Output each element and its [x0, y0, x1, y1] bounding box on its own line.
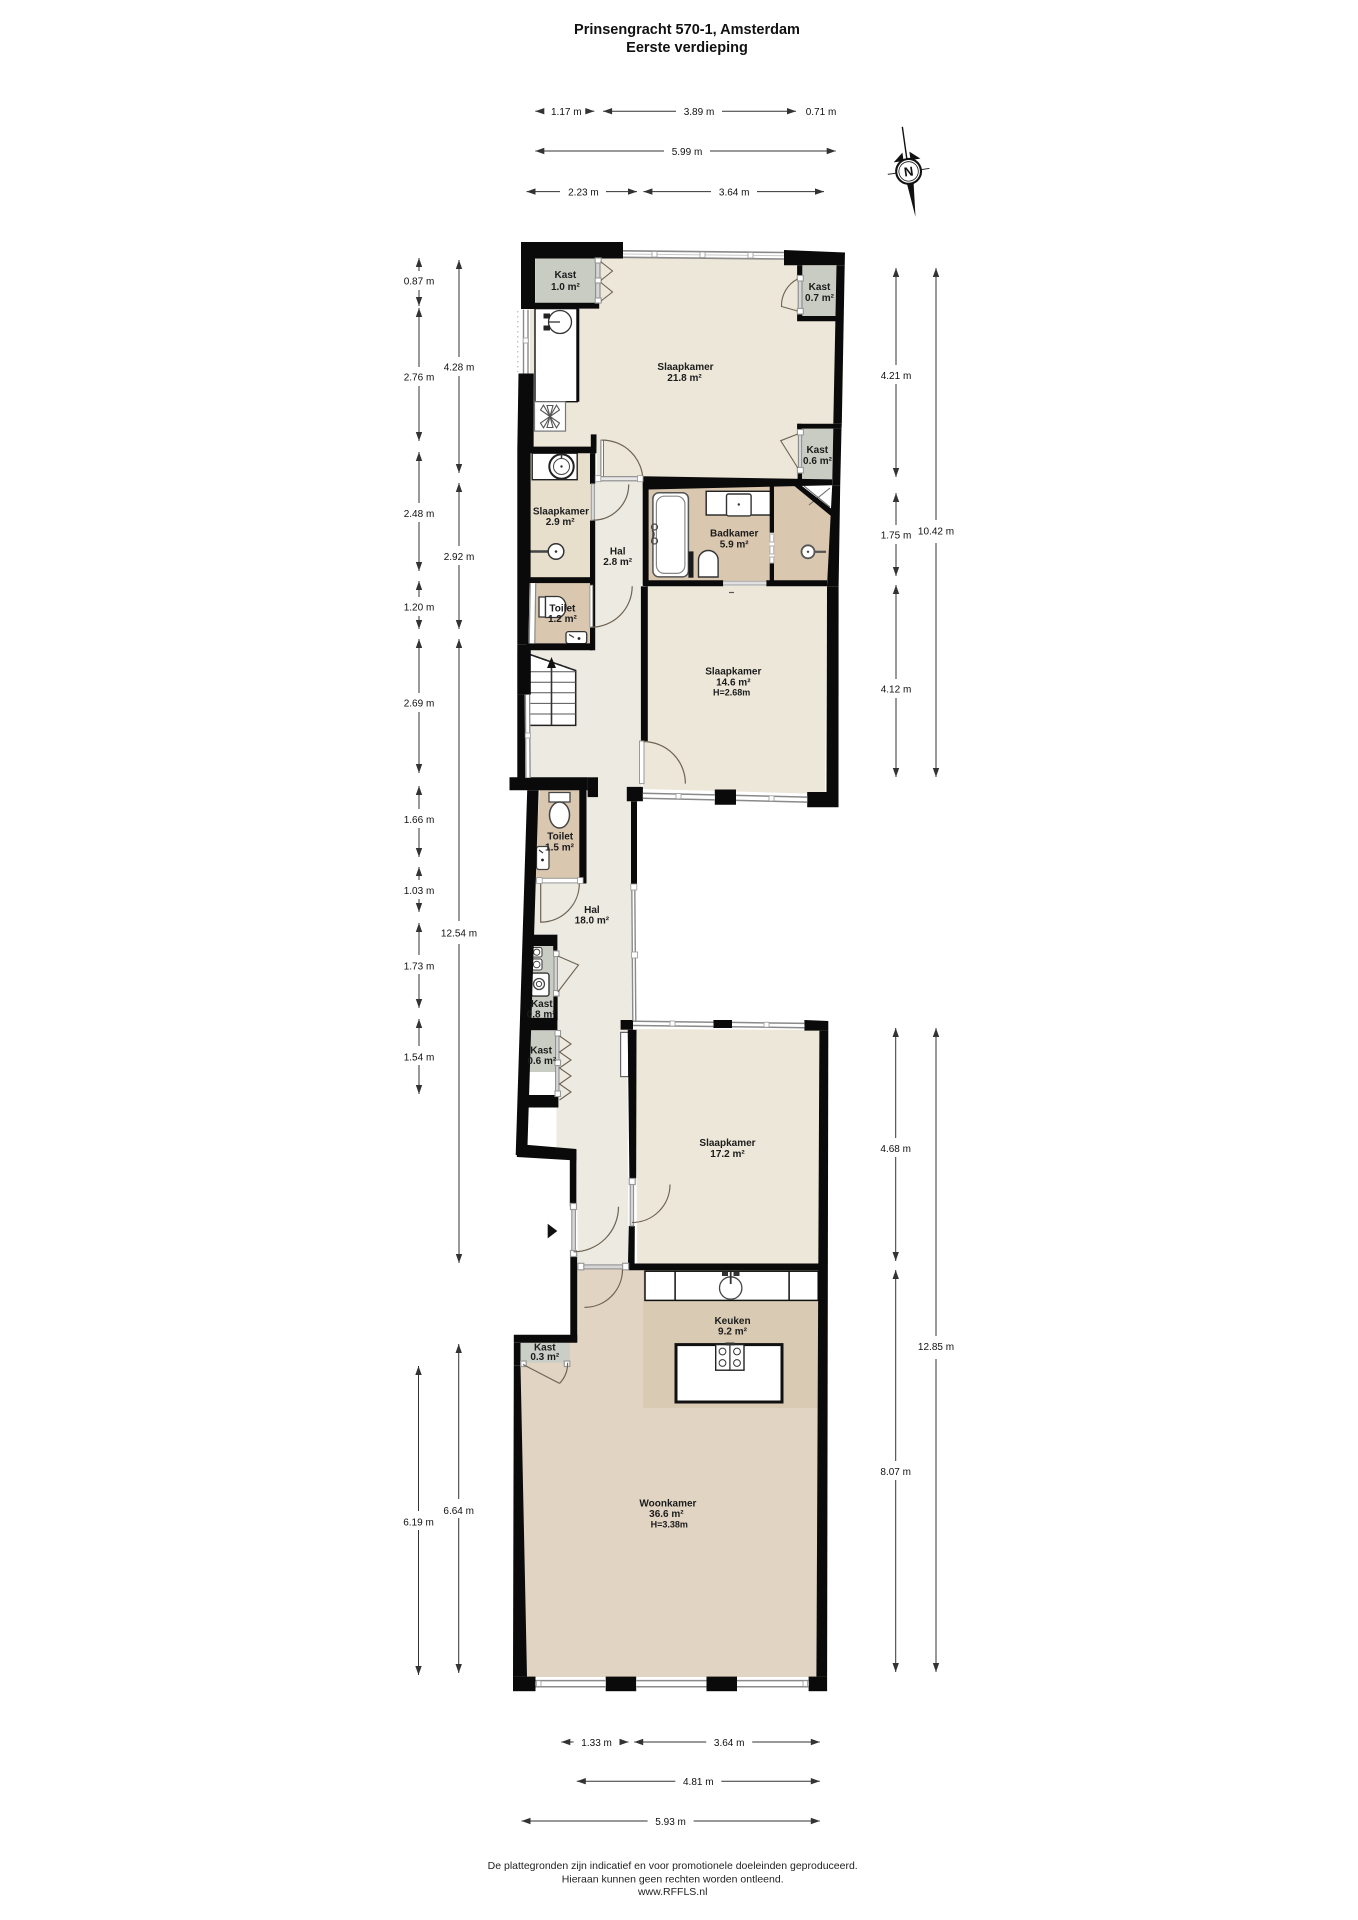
- svg-text:De plattegronden zijn indicati: De plattegronden zijn indicatief en voor…: [488, 1860, 858, 1872]
- svg-text:2.23 m: 2.23 m: [568, 188, 599, 199]
- svg-text:1.66 m: 1.66 m: [404, 815, 435, 826]
- svg-text:1.0 m²: 1.0 m²: [551, 282, 581, 293]
- svg-text:3.64 m: 3.64 m: [719, 188, 750, 199]
- svg-text:Slaapkamer: Slaapkamer: [699, 1138, 755, 1149]
- svg-text:Kast: Kast: [809, 282, 831, 293]
- svg-text:H=3.38m: H=3.38m: [651, 1520, 688, 1530]
- svg-text:1.17 m: 1.17 m: [551, 107, 582, 118]
- svg-text:10.42 m: 10.42 m: [918, 527, 954, 538]
- svg-text:4.28 m: 4.28 m: [444, 363, 475, 374]
- svg-text:0.8 m²: 0.8 m²: [527, 1010, 557, 1021]
- svg-text:1.2 m²: 1.2 m²: [548, 614, 578, 625]
- svg-text:Kast: Kast: [530, 1046, 552, 1057]
- svg-text:1.73 m: 1.73 m: [404, 962, 435, 973]
- svg-text:4.12 m: 4.12 m: [881, 685, 912, 696]
- svg-text:Kast: Kast: [555, 270, 577, 281]
- svg-text:Prinsengracht 570-1, Amsterdam: Prinsengracht 570-1, Amsterdam: [574, 22, 800, 38]
- svg-text:0.6 m²: 0.6 m²: [527, 1056, 557, 1067]
- svg-text:Keuken: Keuken: [714, 1316, 750, 1327]
- svg-text:0.71 m: 0.71 m: [806, 107, 837, 118]
- svg-text:18.0 m²: 18.0 m²: [575, 916, 610, 927]
- svg-text:5.9 m²: 5.9 m²: [720, 540, 750, 551]
- svg-text:H=2.68m: H=2.68m: [713, 688, 750, 698]
- svg-text:2.48 m: 2.48 m: [404, 509, 435, 520]
- svg-text:Toilet: Toilet: [547, 832, 574, 843]
- svg-text:1.20 m: 1.20 m: [404, 603, 435, 614]
- svg-text:4.68 m: 4.68 m: [880, 1144, 911, 1155]
- svg-text:21.8 m²: 21.8 m²: [667, 373, 702, 384]
- svg-text:36.6 m²: 36.6 m²: [649, 1509, 684, 1520]
- svg-text:5.93 m: 5.93 m: [655, 1817, 686, 1828]
- svg-text:1.54 m: 1.54 m: [404, 1053, 435, 1064]
- svg-text:Toilet: Toilet: [549, 604, 576, 615]
- svg-text:Kast: Kast: [806, 445, 828, 456]
- svg-text:Hal: Hal: [610, 547, 626, 558]
- svg-text:2.76 m: 2.76 m: [404, 373, 435, 384]
- svg-text:3.64 m: 3.64 m: [714, 1738, 745, 1749]
- svg-text:Eerste verdieping: Eerste verdieping: [626, 40, 748, 56]
- svg-text:17.2 m²: 17.2 m²: [710, 1149, 745, 1160]
- svg-text:0.3 m²: 0.3 m²: [530, 1352, 560, 1363]
- svg-text:1.75 m: 1.75 m: [881, 531, 912, 542]
- svg-text:12.54 m: 12.54 m: [441, 929, 477, 940]
- svg-text:2.9 m²: 2.9 m²: [546, 517, 576, 528]
- svg-text:Slaapkamer: Slaapkamer: [705, 667, 761, 678]
- svg-text:5.99 m: 5.99 m: [672, 147, 703, 158]
- svg-text:1.33 m: 1.33 m: [581, 1738, 612, 1749]
- svg-text:1.03 m: 1.03 m: [404, 886, 435, 897]
- svg-text:Badkamer: Badkamer: [710, 529, 758, 540]
- svg-text:4.21 m: 4.21 m: [881, 371, 912, 382]
- svg-text:Slaapkamer: Slaapkamer: [533, 507, 589, 518]
- svg-text:0.6 m²: 0.6 m²: [803, 456, 833, 467]
- svg-text:Woonkamer: Woonkamer: [639, 1499, 696, 1510]
- svg-text:2.69 m: 2.69 m: [404, 699, 435, 710]
- svg-text:6.19 m: 6.19 m: [403, 1518, 434, 1529]
- svg-text:0.87 m: 0.87 m: [404, 277, 435, 288]
- svg-text:12.85 m: 12.85 m: [918, 1342, 954, 1353]
- svg-text:Slaapkamer: Slaapkamer: [657, 362, 713, 373]
- svg-text:www.RFFLS.nl: www.RFFLS.nl: [637, 1886, 707, 1898]
- svg-text:4.81 m: 4.81 m: [683, 1777, 714, 1788]
- svg-text:Hieraan kunnen geen rechten wo: Hieraan kunnen geen rechten worden ontle…: [562, 1873, 784, 1885]
- svg-text:6.64 m: 6.64 m: [443, 1506, 474, 1517]
- svg-text:9.2 m²: 9.2 m²: [718, 1327, 748, 1338]
- svg-text:2.8 m²: 2.8 m²: [603, 557, 633, 568]
- svg-text:1.5 m²: 1.5 m²: [545, 843, 575, 854]
- svg-text:3.89 m: 3.89 m: [684, 107, 715, 118]
- svg-text:8.07 m: 8.07 m: [880, 1467, 911, 1478]
- svg-text:Hal: Hal: [584, 905, 600, 916]
- svg-text:Kast: Kast: [531, 999, 553, 1010]
- svg-text:2.92 m: 2.92 m: [444, 552, 475, 563]
- svg-text:0.7 m²: 0.7 m²: [805, 293, 835, 304]
